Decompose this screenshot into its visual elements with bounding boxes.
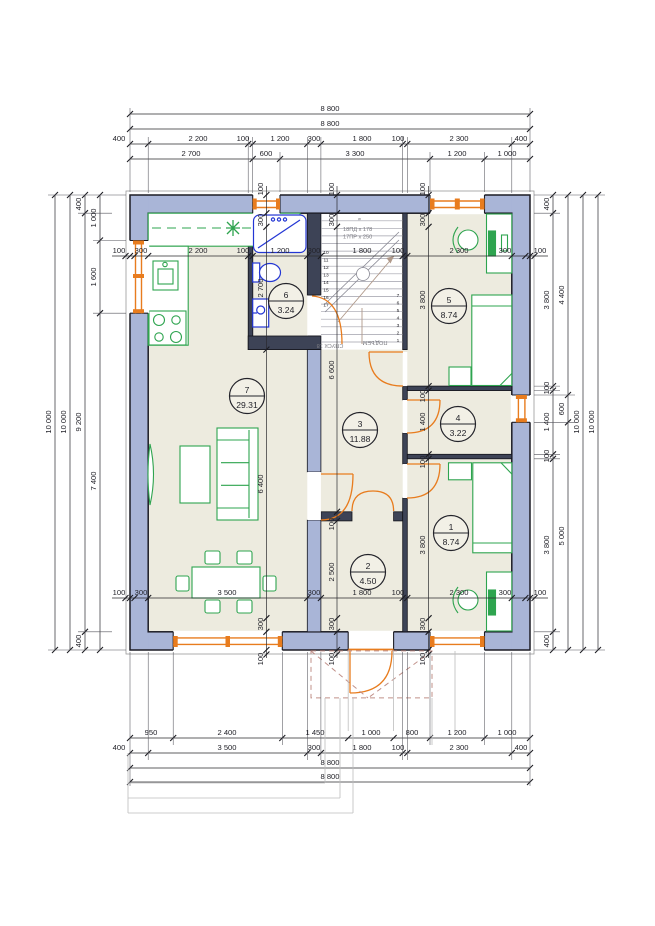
window-frame-mark <box>276 199 280 210</box>
room-number: 5 <box>447 295 452 305</box>
step-number: 14 <box>323 280 329 286</box>
tap-dot <box>277 218 280 221</box>
dim-label: 600 <box>557 403 566 416</box>
dim-label: 3 800 <box>542 535 551 554</box>
dim-label: 400 <box>113 134 126 143</box>
dim-label: 2 700 <box>256 278 265 297</box>
dim-label: 100 <box>256 183 265 196</box>
dim-label: 7 400 <box>89 471 98 490</box>
window-frame-mark <box>430 199 435 210</box>
dim-label: 100 <box>327 183 336 196</box>
step-number: 13 <box>323 273 329 279</box>
room-badge-3: 3 11.88 <box>343 413 378 448</box>
bed <box>472 295 512 386</box>
dim-label: 100 <box>113 588 126 597</box>
washbasin-drain <box>257 306 265 314</box>
stove-burner <box>155 333 163 341</box>
dim-label: 100 <box>542 382 551 395</box>
room-badge-7: 7 29.31 <box>230 379 265 414</box>
step-number: 2 <box>397 331 400 337</box>
dim-label: 400 <box>542 198 551 211</box>
dim-label: 100 <box>392 588 405 597</box>
dim-label: 1 800 <box>352 134 371 143</box>
dim-label: 800 <box>406 728 419 737</box>
window-gap <box>430 631 485 651</box>
hall-room2-wall-r <box>394 512 403 521</box>
dim-label: 100 <box>542 450 551 463</box>
dim-label: 6 600 <box>327 360 336 379</box>
dim-label: 1 000 <box>89 208 98 227</box>
monitor <box>489 590 496 615</box>
step-number: 1 <box>397 338 400 344</box>
window-frame-mark <box>253 199 257 210</box>
step-number: 11 <box>324 258 329 264</box>
dim-label: 2 200 <box>188 134 207 143</box>
dim-label: 1 800 <box>352 743 371 752</box>
room-area: 8.74 <box>441 310 458 320</box>
dim-label: 1 200 <box>447 149 466 158</box>
dim-label: 100 <box>237 134 250 143</box>
dim-label: 1 000 <box>497 728 516 737</box>
dim-label: 2 300 <box>449 743 468 752</box>
room-number: 6 <box>284 290 289 300</box>
room4-door-gap <box>403 400 408 433</box>
dim-label: 300 <box>499 588 512 597</box>
step-number: 17 <box>323 303 329 309</box>
dim-label: 3 800 <box>418 535 427 554</box>
dim-label: 3 300 <box>345 149 364 158</box>
stove-burner <box>154 315 165 326</box>
step-number: 7 <box>397 293 400 299</box>
dim-label: 10 000 <box>572 410 581 433</box>
floor-plan-canvas: 8 800 8 800 400 2 200 100 1 200 300 1 80… <box>0 0 655 926</box>
stair-spec: 17ПР x 250 <box>343 235 372 241</box>
stove-burner <box>171 332 182 343</box>
tap-dot <box>283 218 286 221</box>
stair-ascent-label: ПОДЪЕМ <box>362 339 387 345</box>
coffee-table <box>180 446 210 503</box>
step-number: 5 <box>397 308 400 314</box>
dim-label: 100 <box>256 653 265 666</box>
stair-mid-number: 9 <box>357 217 363 220</box>
dim-label: 10 000 <box>44 410 53 433</box>
monitor <box>489 231 496 256</box>
room5-door-gap <box>403 352 408 386</box>
bath-door-gap <box>307 295 321 336</box>
room-number: 2 <box>366 561 371 571</box>
dim-label: 400 <box>74 635 83 648</box>
dim-label: 10 000 <box>587 410 596 433</box>
step-number: 12 <box>323 265 329 271</box>
dim-label: 2 300 <box>449 246 468 255</box>
dim-label: 3 500 <box>217 743 236 752</box>
dim-label: 8 800 <box>320 772 339 781</box>
step-number: 10 <box>323 250 329 256</box>
room-badge-4: 4 3.22 <box>441 407 476 442</box>
drawing-page: 8 800 8 800 400 2 200 100 1 200 300 1 80… <box>0 0 655 926</box>
dim-label: 1 450 <box>305 728 324 737</box>
dim-label: 2 700 <box>181 149 200 158</box>
window-frame-mark <box>133 309 144 313</box>
room-badge-1: 1 8.74 <box>434 516 469 551</box>
dim-label: 950 <box>145 728 158 737</box>
dim-label: 1 200 <box>270 246 289 255</box>
dim-label: 100 <box>418 390 427 403</box>
window-frame-mark <box>430 636 435 647</box>
dim-label: 300 <box>327 618 336 631</box>
dim-label: 1 200 <box>270 134 289 143</box>
dim-label: 2 500 <box>327 562 336 581</box>
stair-descent-label: СПУСК 18 <box>317 342 344 348</box>
room-area: 3.22 <box>450 428 467 438</box>
dim-label: 100 <box>418 183 427 196</box>
living-door-gap <box>307 472 321 520</box>
room-area: 8.74 <box>443 537 460 547</box>
chair <box>237 600 252 613</box>
dim-label: 8 800 <box>320 758 339 767</box>
dim-label: 2 300 <box>449 134 468 143</box>
bed <box>473 463 512 553</box>
dim-label: 100 <box>327 518 336 531</box>
dim-label: 2 400 <box>217 728 236 737</box>
dim-label: 1 400 <box>418 412 427 431</box>
window-frame-mark <box>173 636 178 647</box>
bath-wall-bottom <box>248 336 321 350</box>
chair <box>205 551 220 564</box>
dim-label: 4 400 <box>557 285 566 304</box>
window-frame-mark <box>133 241 144 245</box>
dim-label: 5 000 <box>557 526 566 545</box>
dim-label: 400 <box>515 134 528 143</box>
dim-label: 100 <box>534 246 547 255</box>
dim-label: 300 <box>256 618 265 631</box>
window-frame-mark <box>133 274 144 278</box>
dim-label: 100 <box>237 246 250 255</box>
stair-spec: 18ПД x 178 <box>343 227 372 233</box>
window-frame-mark <box>516 418 527 422</box>
right-wall-seg1 <box>403 386 408 400</box>
stove-burner <box>172 316 180 324</box>
dim-label: 1 600 <box>89 267 98 286</box>
dim-label: 8 800 <box>320 119 339 128</box>
window-gap <box>511 395 531 422</box>
dim-label: 3 800 <box>418 290 427 309</box>
window-frame-mark <box>226 636 231 647</box>
dim-label: 300 <box>308 246 321 255</box>
step-number: 4 <box>397 316 400 322</box>
dim-label: 300 <box>308 743 321 752</box>
chair <box>205 600 220 613</box>
kitchen-sink-basin <box>158 269 173 284</box>
entry-gap <box>348 631 393 651</box>
dim-label: 100 <box>418 653 427 666</box>
room-badge-5: 5 8.74 <box>432 289 467 324</box>
dim-label: 8 800 <box>320 104 339 113</box>
dim-label: 300 <box>418 618 427 631</box>
dim-label: 1 000 <box>361 728 380 737</box>
chair <box>176 576 189 591</box>
step-number: 15 <box>323 288 329 294</box>
nightstand <box>449 367 471 386</box>
room-number: 1 <box>449 522 454 532</box>
dim-label: 100 <box>418 456 427 469</box>
dim-label: 6 400 <box>256 474 265 493</box>
dim-label: 300 <box>308 588 321 597</box>
dim-label: 300 <box>135 246 148 255</box>
right-wall-seg2 <box>403 433 408 464</box>
dim-label: 100 <box>534 588 547 597</box>
room-badge-6: 6 3.24 <box>269 284 304 319</box>
entry-door-leaf-arc <box>350 651 392 693</box>
dim-label: 600 <box>260 149 273 158</box>
window-frame-mark <box>480 636 485 647</box>
dim-label: 1 200 <box>447 728 466 737</box>
stair-break-circle <box>357 268 370 281</box>
window-frame-mark <box>455 199 460 210</box>
dim-label: 300 <box>135 588 148 597</box>
dim-label: 300 <box>308 134 321 143</box>
dim-label: 400 <box>542 635 551 648</box>
dim-label: 2 300 <box>449 588 468 597</box>
step-number: 3 <box>397 323 400 329</box>
room-number: 4 <box>456 413 461 423</box>
stair-wall-right <box>403 213 408 349</box>
room1-door-gap <box>403 464 408 498</box>
room-area: 3.24 <box>278 305 295 315</box>
chair <box>263 576 276 591</box>
window-frame-mark <box>480 199 485 210</box>
dim-label: 100 <box>327 653 336 666</box>
room-area: 11.88 <box>350 434 371 444</box>
chair <box>237 551 252 564</box>
room-number: 3 <box>358 419 363 429</box>
window-frame-mark <box>278 636 283 647</box>
dim-label: 10 000 <box>59 410 68 433</box>
step-number: 6 <box>397 301 400 307</box>
room-badge-2: 2 4.50 <box>351 555 386 590</box>
room-area: 4.50 <box>360 576 377 586</box>
dim-label: 3 500 <box>217 588 236 597</box>
dim-label: 3 800 <box>542 290 551 309</box>
dim-label: 300 <box>499 246 512 255</box>
dim-label: 1 000 <box>497 149 516 158</box>
dim-label: 1 400 <box>542 412 551 431</box>
room-number: 7 <box>245 385 250 395</box>
dim-label: 400 <box>113 743 126 752</box>
dim-label: 100 <box>392 134 405 143</box>
dim-label: 2 200 <box>188 246 207 255</box>
dim-label: 400 <box>74 198 83 211</box>
sofa <box>217 428 258 520</box>
right-wall-seg3 <box>403 498 408 632</box>
dim-label: 400 <box>515 743 528 752</box>
window-frame-mark <box>516 395 527 399</box>
tap-dot <box>271 218 274 221</box>
hall-wall-left-a <box>307 350 321 472</box>
nightstand <box>449 463 472 480</box>
kitchen-tap <box>163 262 167 266</box>
dim-label: 9 200 <box>74 412 83 431</box>
dim-label: 100 <box>392 246 405 255</box>
dim-label: 100 <box>392 743 405 752</box>
dim-label: 1 800 <box>352 246 371 255</box>
hall-wall-left-b <box>307 520 321 632</box>
cooker-hood-asterisk <box>226 220 240 236</box>
dim-label: 300 <box>327 214 336 227</box>
step-number: 16 <box>323 295 329 301</box>
room-area: 29.31 <box>236 400 258 410</box>
dim-label: 100 <box>113 246 126 255</box>
dim-label: 300 <box>256 214 265 227</box>
dim-label: 300 <box>418 214 427 227</box>
